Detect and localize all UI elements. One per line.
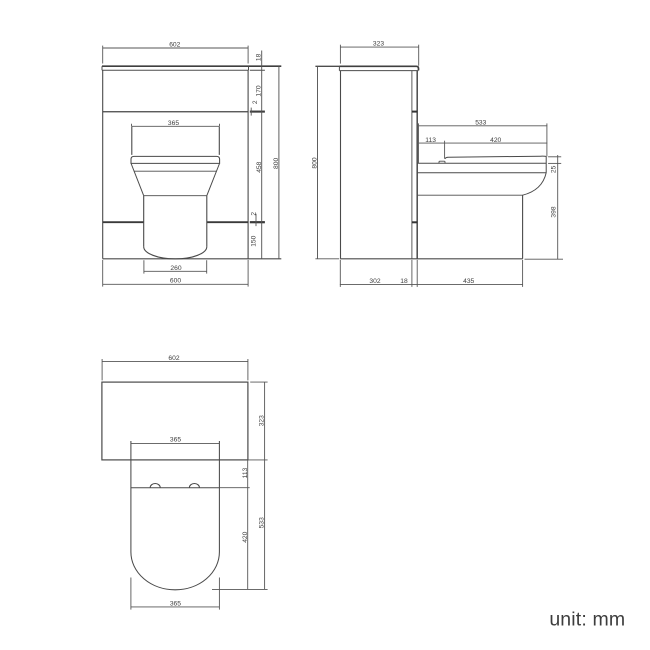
svg-text:323: 323 (373, 41, 384, 48)
svg-text:458: 458 (256, 161, 263, 172)
svg-text:800: 800 (273, 158, 280, 169)
svg-text:2: 2 (251, 212, 258, 216)
svg-text:323: 323 (258, 415, 265, 426)
svg-text:365: 365 (170, 600, 181, 607)
svg-text:365: 365 (168, 120, 179, 127)
svg-text:18: 18 (400, 278, 408, 285)
svg-text:435: 435 (463, 278, 474, 285)
svg-text:18: 18 (256, 53, 263, 61)
svg-text:420: 420 (242, 531, 249, 542)
svg-text:2: 2 (252, 100, 259, 104)
svg-text:600: 600 (170, 278, 181, 285)
svg-text:533: 533 (258, 517, 265, 528)
svg-text:365: 365 (170, 437, 181, 444)
svg-text:398: 398 (551, 206, 558, 217)
svg-text:302: 302 (369, 278, 380, 285)
svg-text:602: 602 (168, 355, 179, 362)
svg-text:113: 113 (242, 467, 249, 478)
svg-text:170: 170 (255, 85, 262, 96)
svg-text:150: 150 (251, 235, 258, 246)
svg-text:unit: mm: unit: mm (549, 609, 625, 631)
svg-text:533: 533 (475, 119, 486, 126)
svg-text:420: 420 (490, 137, 501, 144)
svg-text:602: 602 (169, 42, 180, 49)
svg-text:113: 113 (425, 137, 436, 144)
svg-text:25: 25 (551, 165, 558, 173)
svg-text:260: 260 (170, 265, 181, 272)
svg-text:800: 800 (312, 157, 319, 168)
